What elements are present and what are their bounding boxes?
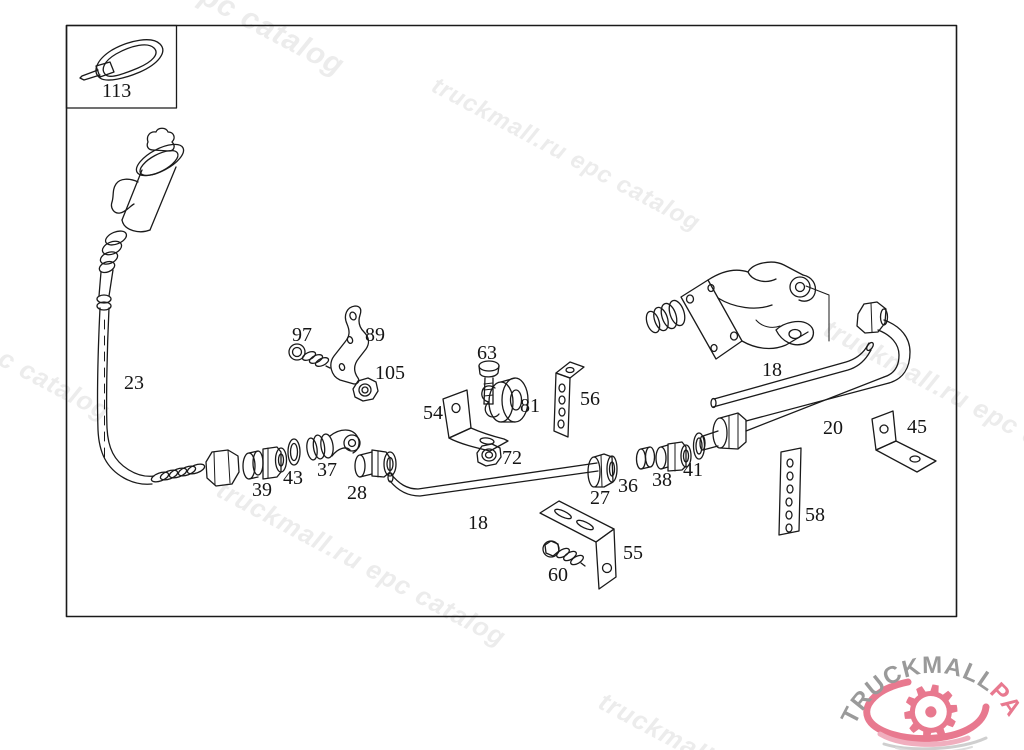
- parts-catalog-page: truckmall.ru epc catalog truckmall.ru ep…: [0, 0, 1024, 750]
- part-label-113: 113: [102, 80, 131, 102]
- part-58-strip: [779, 448, 801, 535]
- diagram-frame: [67, 26, 957, 617]
- part-20-pipe: [700, 302, 910, 450]
- part-label-36: 36: [618, 475, 638, 497]
- part-label-63: 63: [477, 342, 497, 364]
- part-89-bracket: [331, 306, 369, 384]
- part-label-39: 39: [252, 479, 272, 501]
- part-label-23: 23: [124, 372, 144, 394]
- part-60-bolt: [543, 541, 585, 567]
- part-36-ferrule: [637, 447, 655, 469]
- part-39-connector: [243, 447, 287, 479]
- part-label-18: 18: [762, 359, 782, 381]
- part-label-97: 97: [292, 324, 312, 346]
- part-72-nut: [477, 444, 501, 466]
- part-label-38: 38: [652, 469, 672, 491]
- part-18-pipe-right: [711, 341, 875, 407]
- part-slave-cylinder: [644, 262, 829, 359]
- part-label-72: 72: [502, 447, 522, 469]
- diagram-canvas: 113 23 97 89 105 63 54 81 56 72 18 20 45…: [0, 0, 1024, 750]
- part-37-elbow-fitting: [306, 430, 360, 461]
- part-label-81: 81: [520, 395, 540, 417]
- part-113-cable-tie: [80, 40, 163, 80]
- part-label-41: 41: [683, 459, 703, 481]
- part-97-bolt: [289, 344, 330, 368]
- part-label-28: 28: [347, 482, 367, 504]
- part-label-56: 56: [580, 388, 600, 410]
- part-label-54: 54: [423, 402, 443, 424]
- part-43-seal-ring: [288, 439, 300, 465]
- part-label-55: 55: [623, 542, 643, 564]
- part-23-hose: [97, 228, 239, 486]
- part-label-18b: 18: [468, 512, 488, 534]
- part-27-union-nut: [588, 454, 617, 487]
- part-label-45: 45: [907, 416, 927, 438]
- part-label-43: 43: [283, 467, 303, 489]
- part-label-27: 27: [590, 487, 610, 509]
- part-label-37: 37: [317, 459, 337, 481]
- part-label-105: 105: [375, 362, 405, 384]
- part-41-washer: [694, 433, 705, 459]
- part-18-pipe-left: [388, 463, 598, 496]
- part-54-bracket: [443, 390, 508, 451]
- part-label-20: 20: [823, 417, 843, 439]
- part-label-60: 60: [548, 564, 568, 586]
- part-label-89: 89: [365, 324, 385, 346]
- part-label-58: 58: [805, 504, 825, 526]
- part-master-cylinder: [111, 128, 188, 231]
